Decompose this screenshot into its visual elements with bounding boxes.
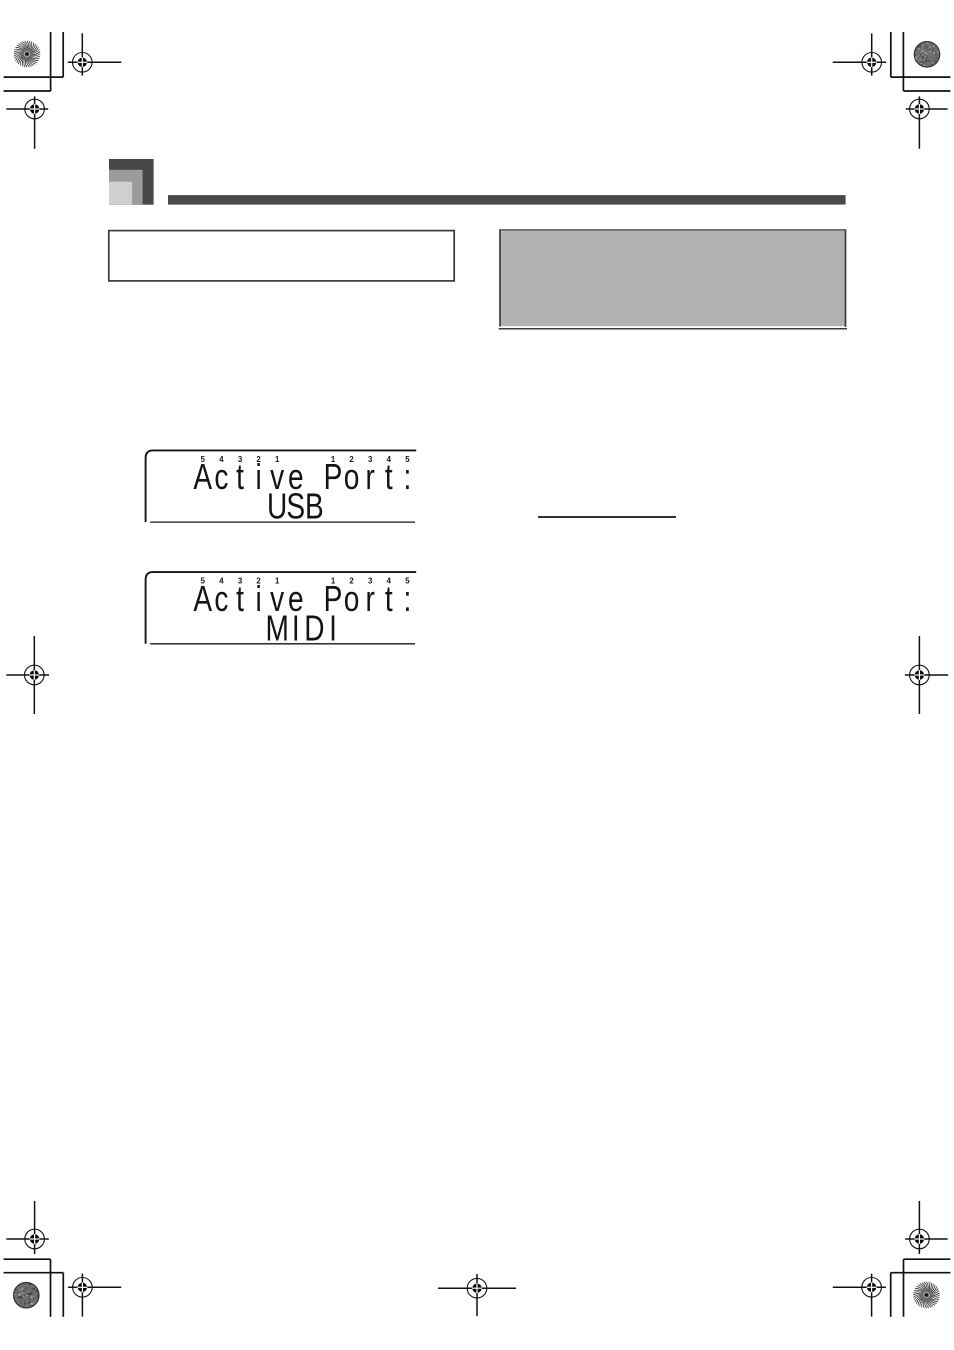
- svg-text:D: D: [304, 608, 324, 648]
- svg-text:r: r: [366, 457, 376, 497]
- svg-text::: :: [403, 578, 411, 618]
- svg-text:A: A: [193, 457, 212, 497]
- svg-text:t: t: [385, 457, 393, 497]
- svg-text:S: S: [286, 486, 305, 526]
- svg-text:B: B: [305, 486, 324, 526]
- svg-text:i: i: [255, 457, 261, 497]
- svg-text:I: I: [329, 608, 337, 648]
- svg-text:t: t: [236, 578, 244, 618]
- svg-text:o: o: [344, 578, 360, 618]
- svg-text:r: r: [366, 578, 376, 618]
- svg-text:t: t: [236, 457, 244, 497]
- svg-text:i: i: [255, 578, 261, 618]
- svg-text:t: t: [385, 578, 393, 618]
- svg-text:M: M: [266, 608, 289, 648]
- svg-text:I: I: [292, 608, 300, 648]
- svg-text:U: U: [267, 486, 287, 526]
- svg-text:c: c: [214, 457, 228, 497]
- svg-text:A: A: [193, 578, 212, 618]
- svg-text:P: P: [324, 457, 343, 497]
- svg-text::: :: [403, 457, 411, 497]
- svg-text:c: c: [214, 578, 228, 618]
- svg-text:o: o: [344, 457, 360, 497]
